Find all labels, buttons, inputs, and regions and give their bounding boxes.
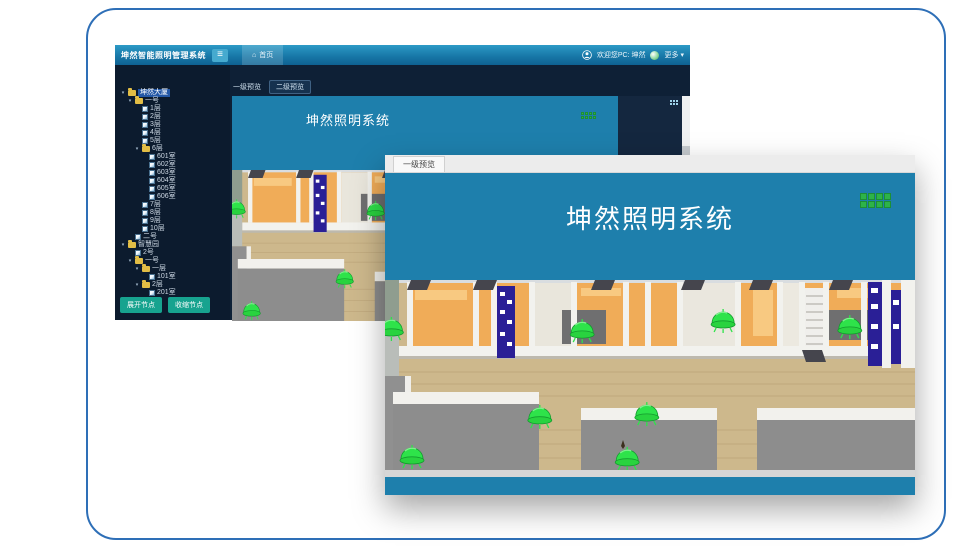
- room-icon: [142, 202, 148, 208]
- tree-node-label: 4层: [150, 129, 161, 137]
- overlay-next-banner-strip: [385, 477, 915, 495]
- scrollbar-thumb[interactable]: [682, 96, 690, 146]
- tree-expander-icon[interactable]: ▾: [134, 265, 140, 273]
- user-avatar-icon[interactable]: [582, 50, 592, 60]
- tree-node-label: 坤然大厦: [138, 89, 170, 97]
- folder-icon: [142, 282, 150, 288]
- grid-cell: [860, 193, 867, 200]
- tree-expander-icon[interactable]: ▾: [127, 257, 133, 265]
- room-icon: [149, 170, 155, 176]
- tree-node-label: 二号: [143, 233, 157, 241]
- tree-node[interactable]: 604室: [120, 177, 228, 185]
- tree-node[interactable]: 606室: [120, 193, 228, 201]
- tree-node-label: 101室: [157, 273, 176, 281]
- tree-node[interactable]: ▾一号: [120, 257, 228, 265]
- room-icon: [142, 106, 148, 112]
- room-icon: [142, 210, 148, 216]
- overlay-banner-title: 坤然照明系统: [566, 199, 734, 236]
- tree-node[interactable]: ▾6层: [120, 145, 228, 153]
- banner-title: 坤然照明系统: [306, 110, 390, 129]
- overlay-banner: 坤然照明系统: [385, 173, 915, 280]
- grid-cell: [868, 201, 875, 208]
- tree-node-label: 604室: [157, 177, 176, 185]
- preview-tabbar: 一级预览 二级预览: [230, 79, 690, 95]
- grid-cell: [860, 201, 867, 208]
- tree-node-label: 601室: [157, 153, 176, 161]
- fullscreen-dot: [676, 103, 678, 105]
- grid-cell: [581, 116, 584, 119]
- notification-icon[interactable]: [650, 51, 659, 60]
- tree-node-label: 605室: [157, 185, 176, 193]
- tree-node-label: 2层: [152, 281, 163, 289]
- tree-node-label: 201室: [157, 289, 176, 297]
- tree-node-label: 一号: [145, 97, 159, 105]
- expand-nodes-button[interactable]: 展开节点: [120, 297, 162, 313]
- grid-cell: [884, 193, 891, 200]
- folder-icon: [135, 98, 143, 104]
- folder-icon: [142, 146, 150, 152]
- tree-node[interactable]: 1层: [120, 105, 228, 113]
- grid-cell: [585, 116, 588, 119]
- room-icon: [149, 154, 155, 160]
- tree-node[interactable]: 601室: [120, 153, 228, 161]
- header-right-group: 欢迎您PC: 坤然 更多 ▾: [582, 50, 684, 60]
- tree-expander-icon[interactable]: ▾: [134, 281, 140, 289]
- home-tab[interactable]: ⌂ 首页: [242, 45, 283, 65]
- tree-node-label: 9层: [150, 217, 161, 225]
- grid-cell: [581, 112, 584, 115]
- room-icon: [142, 114, 148, 120]
- zoom-overlay-window: 一级预览 坤然照明系统: [385, 155, 915, 495]
- grid-cell: [593, 116, 596, 119]
- fullscreen-dot: [673, 103, 675, 105]
- fullscreen-dot: [670, 100, 672, 102]
- collapse-nodes-button[interactable]: 收缩节点: [168, 297, 210, 313]
- tree-node-label: 10层: [150, 225, 165, 233]
- more-label: 更多: [664, 50, 678, 60]
- tree-node-label: 一层: [152, 265, 166, 273]
- screenshot-canvas: 坤然智能照明管理系统 ≡ ⌂ 首页 欢迎您PC: 坤然 更多 ▾: [0, 0, 957, 549]
- menu-toggle-icon[interactable]: ≡: [212, 49, 228, 62]
- chevron-down-icon: ▾: [680, 51, 684, 59]
- tree-node[interactable]: 4层: [120, 129, 228, 137]
- tree-node[interactable]: ▾智慧园: [120, 241, 228, 249]
- grid-cell: [593, 112, 596, 115]
- tree-node[interactable]: 603室: [120, 169, 228, 177]
- tree-expander-icon[interactable]: ▾: [127, 97, 133, 105]
- home-icon: ⌂: [252, 52, 256, 59]
- grid-cell: [589, 112, 592, 115]
- grid-cell: [868, 193, 875, 200]
- tree-node[interactable]: 8层: [120, 209, 228, 217]
- room-icon: [142, 226, 148, 232]
- tree-node[interactable]: ▾一层: [120, 265, 228, 273]
- tree-node-label: 606室: [157, 193, 176, 201]
- tree-node-label: 2层: [150, 113, 161, 121]
- tree-node[interactable]: 9层: [120, 217, 228, 225]
- tree-node[interactable]: ▾2层: [120, 281, 228, 289]
- room-icon: [149, 194, 155, 200]
- green-grid-icon[interactable]: [581, 112, 596, 119]
- tree-expander-icon[interactable]: ▾: [134, 145, 140, 153]
- tree-node-label: 一号: [145, 257, 159, 265]
- tab-level1-preview[interactable]: 一级预览: [233, 82, 261, 92]
- room-icon: [142, 122, 148, 128]
- folder-icon: [142, 266, 150, 272]
- floor-plan-3d: [385, 280, 915, 470]
- tree-node[interactable]: 605室: [120, 185, 228, 193]
- room-icon: [135, 234, 141, 240]
- app-title: 坤然智能照明管理系统: [121, 50, 206, 61]
- tree-node[interactable]: 101室: [120, 273, 228, 281]
- tree-node-label: 8层: [150, 209, 161, 217]
- folder-icon: [128, 242, 136, 248]
- device-tree-sidebar: ▾坤然大厦▾一号1层2层3层4层5层▾6层601室602室603室604室605…: [115, 65, 230, 320]
- room-icon: [149, 162, 155, 168]
- tree-node[interactable]: 5层: [120, 137, 228, 145]
- tree-node[interactable]: 3层: [120, 121, 228, 129]
- room-icon: [149, 186, 155, 192]
- room-icon: [149, 178, 155, 184]
- overlay-tab-level1[interactable]: 一级预览: [393, 156, 445, 172]
- more-dropdown[interactable]: 更多 ▾: [664, 50, 684, 60]
- tree-node-label: 智慧园: [138, 241, 159, 249]
- fullscreen-icon[interactable]: [670, 100, 678, 105]
- grid-cell: [585, 112, 588, 115]
- tree-expander-icon[interactable]: ▾: [120, 89, 126, 97]
- overlay-tabbar: 一级预览: [385, 155, 915, 173]
- tree-expander-icon[interactable]: ▾: [120, 241, 126, 249]
- grid-cell: [884, 201, 891, 208]
- tab-level2-preview[interactable]: 二级预览: [269, 80, 311, 94]
- welcome-text: 欢迎您PC: 坤然: [597, 50, 646, 60]
- grid-cell: [589, 116, 592, 119]
- room-icon: [142, 130, 148, 136]
- fullscreen-dot: [673, 100, 675, 102]
- tree-node[interactable]: 7层: [120, 201, 228, 209]
- fullscreen-dot: [670, 103, 672, 105]
- tree-node[interactable]: 10层: [120, 225, 228, 233]
- tree-node-label: 6层: [152, 145, 163, 153]
- tree-node-label: 1层: [150, 105, 161, 113]
- tree-node[interactable]: 二号: [120, 233, 228, 241]
- home-tab-label: 首页: [259, 50, 273, 60]
- tree-node-label: 5层: [150, 137, 161, 145]
- tree-node-label: 603室: [157, 169, 176, 177]
- grid-cell: [876, 193, 883, 200]
- floor-plan-large: [385, 280, 915, 470]
- tree-node-label: 602室: [157, 161, 176, 169]
- green-grid-icon[interactable]: [860, 193, 891, 208]
- tree-node[interactable]: 2层: [120, 113, 228, 121]
- grid-cell: [876, 201, 883, 208]
- room-icon: [149, 290, 155, 296]
- app-header: 坤然智能照明管理系统 ≡ ⌂ 首页 欢迎您PC: 坤然 更多 ▾: [115, 45, 690, 65]
- overlay-footer-strip: [385, 470, 915, 477]
- tree-node-label: 2号: [143, 249, 154, 257]
- room-icon: [149, 274, 155, 280]
- tree-buttons: 展开节点 收缩节点: [120, 297, 210, 313]
- tree-node[interactable]: 602室: [120, 161, 228, 169]
- tree-node-label: 7层: [150, 201, 161, 209]
- fullscreen-dot: [676, 100, 678, 102]
- tree-node-label: 3层: [150, 121, 161, 129]
- tree-node[interactable]: 201室: [120, 289, 228, 297]
- tree-node[interactable]: ▾一号: [120, 97, 228, 105]
- device-tree: ▾坤然大厦▾一号1层2层3层4层5层▾6层601室602室603室604室605…: [120, 89, 228, 297]
- room-icon: [142, 218, 148, 224]
